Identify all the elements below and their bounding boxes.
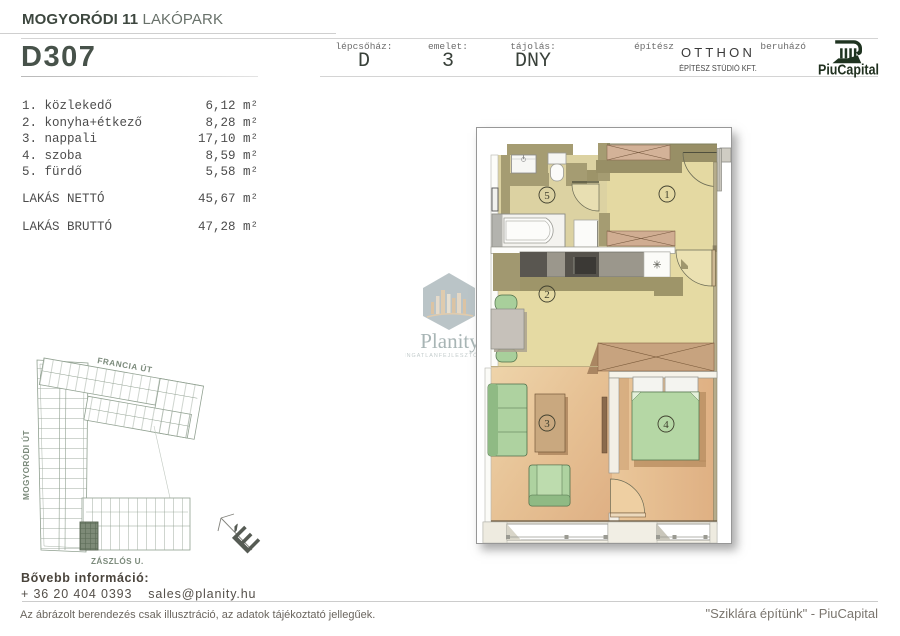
svg-text:5: 5 xyxy=(544,190,550,202)
svg-text:2: 2 xyxy=(544,289,550,301)
svg-text:1: 1 xyxy=(664,189,670,201)
svg-text:PiuCapital: PiuCapital xyxy=(818,62,879,78)
svg-text:3: 3 xyxy=(544,418,550,430)
svg-text:Planity: Planity xyxy=(420,329,480,353)
svg-text:MOGYORÓDI ÚT: MOGYORÓDI ÚT xyxy=(20,430,31,500)
svg-text:É: É xyxy=(225,519,265,560)
svg-text:ZÁSZLÓS U.: ZÁSZLÓS U. xyxy=(91,555,144,566)
svg-text:4: 4 xyxy=(663,419,669,431)
